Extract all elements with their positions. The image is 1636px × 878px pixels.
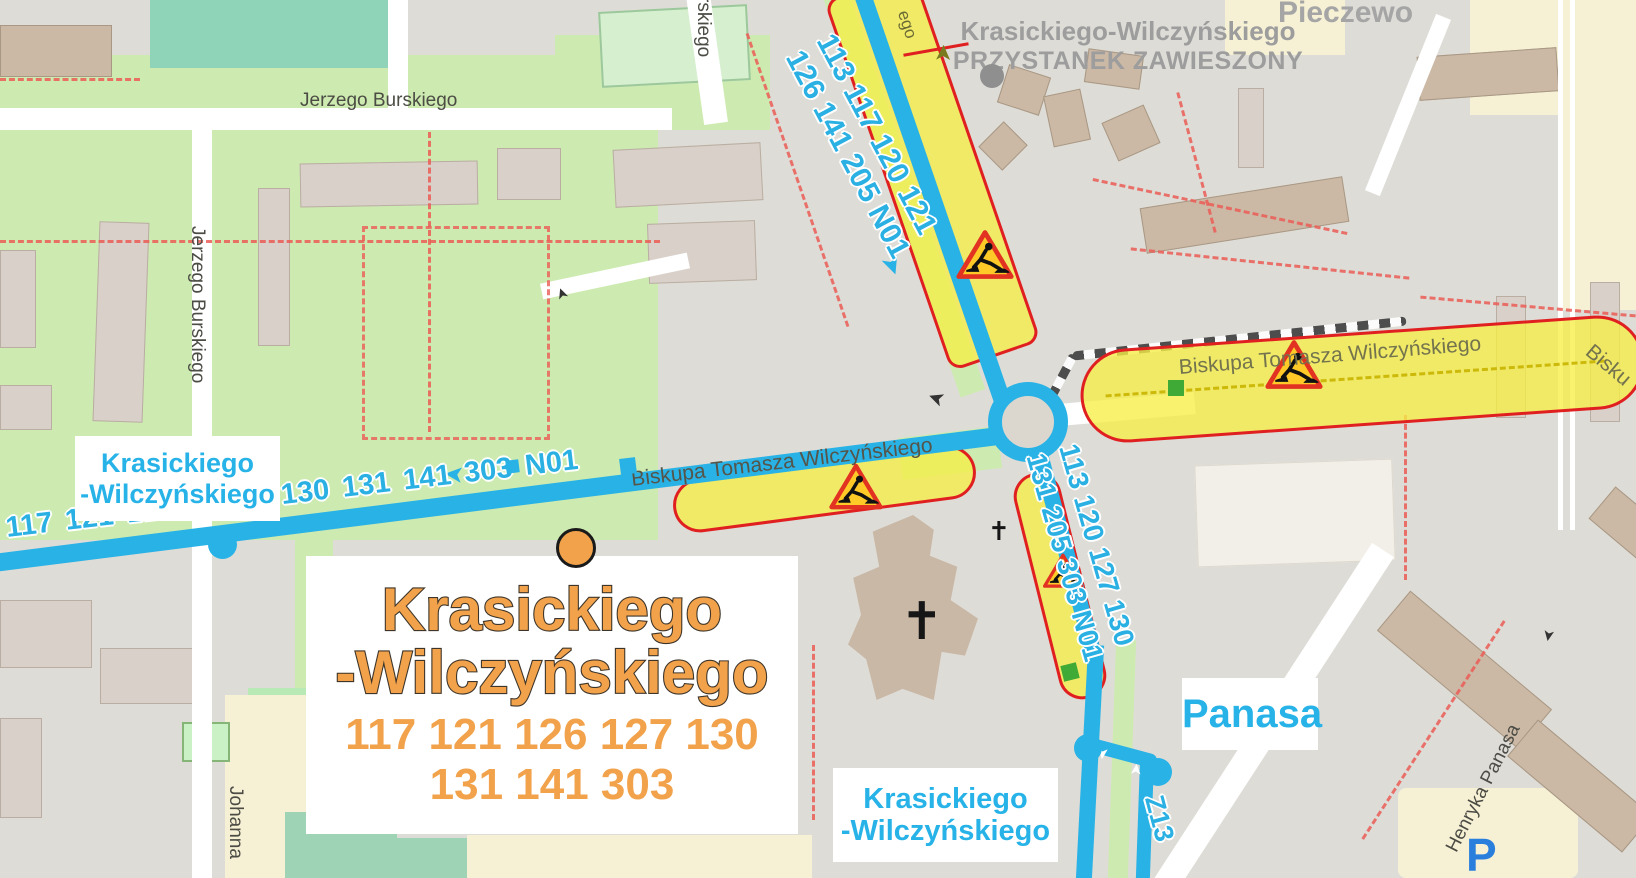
building (647, 220, 757, 284)
suspended-stop-status: PRZYSTANEK ZAWIESZONY (952, 47, 1304, 76)
stop-marker[interactable] (1074, 734, 1102, 762)
roadwork-icon (955, 228, 1015, 282)
featured-stop-marker[interactable] (556, 528, 596, 568)
building (100, 648, 196, 704)
road (1558, 0, 1563, 530)
stop-label-west: Krasickiego -Wilczyńskiego (75, 436, 280, 521)
featured-stop-name: -Wilczyńskiego (306, 642, 798, 704)
stop-label-south: Krasickiego -Wilczyńskiego (833, 768, 1058, 862)
footpath (362, 226, 550, 440)
sports-pitch (150, 0, 390, 68)
pond-area (598, 4, 751, 88)
street-label: Jerzego Burskiego (186, 226, 208, 383)
parking-icon: P (1466, 828, 1497, 878)
footpath (1404, 415, 1407, 580)
building (1238, 88, 1264, 168)
building (0, 25, 112, 77)
street-label: rskiego (692, 0, 714, 57)
church-cross-icon: ✝ (900, 592, 944, 652)
stop-marker[interactable] (619, 457, 637, 475)
building (0, 385, 52, 430)
map-canvas[interactable]: ➤ ➤ ➤ ➤ ➤ ➤ ➤ ➤ ✝ ✝ Jerzego Burskiego Je… (0, 0, 1636, 878)
building (1140, 176, 1350, 254)
sand-area (467, 835, 812, 878)
building (497, 148, 561, 200)
suspended-stop-name: Krasickiego-Wilczyńskiego (952, 16, 1304, 47)
footpath (0, 240, 660, 243)
featured-stop-routes: 117 121 126 127 130 (306, 710, 798, 760)
construction-site-marker (1168, 380, 1184, 396)
suspended-stop-marker[interactable] (980, 64, 1004, 88)
roadwork-icon (828, 462, 884, 512)
building (1589, 486, 1636, 595)
footpath (1131, 247, 1410, 279)
stop-label-panasa: Panasa (1182, 678, 1318, 750)
stop-marker[interactable] (208, 530, 237, 559)
church-cross-icon: ✝ (988, 516, 1010, 547)
building (367, 838, 467, 878)
featured-stop-routes: 131 141 303 (306, 760, 798, 810)
map-arrow-icon: ➤ (925, 386, 948, 411)
building (0, 600, 92, 668)
stop-marker[interactable] (1144, 758, 1172, 786)
building (300, 160, 479, 207)
building (978, 121, 1027, 170)
building (1043, 89, 1091, 148)
stop-marker[interactable] (505, 459, 519, 473)
footpath (0, 78, 140, 81)
building (613, 142, 764, 208)
direction-arrow-icon: ➤ (1128, 763, 1144, 777)
featured-stop-name: Krasickiego (306, 579, 798, 641)
building (1101, 104, 1160, 161)
suspended-stop-label: Krasickiego-Wilczyńskiego PRZYSTANEK ZAW… (952, 16, 1304, 76)
building (0, 250, 36, 348)
featured-stop-callout: Krasickiego -Wilczyńskiego 117 121 126 1… (306, 556, 798, 834)
footpath (812, 645, 815, 820)
building (1377, 591, 1552, 750)
road (1365, 14, 1451, 196)
street-label: Jerzego Burskiego (300, 90, 457, 112)
building (0, 718, 42, 818)
building (258, 188, 290, 346)
road (1570, 0, 1575, 530)
map-arrow-icon: ➤ (1540, 628, 1557, 643)
street-label: Johanna (224, 786, 246, 859)
building (93, 221, 150, 423)
